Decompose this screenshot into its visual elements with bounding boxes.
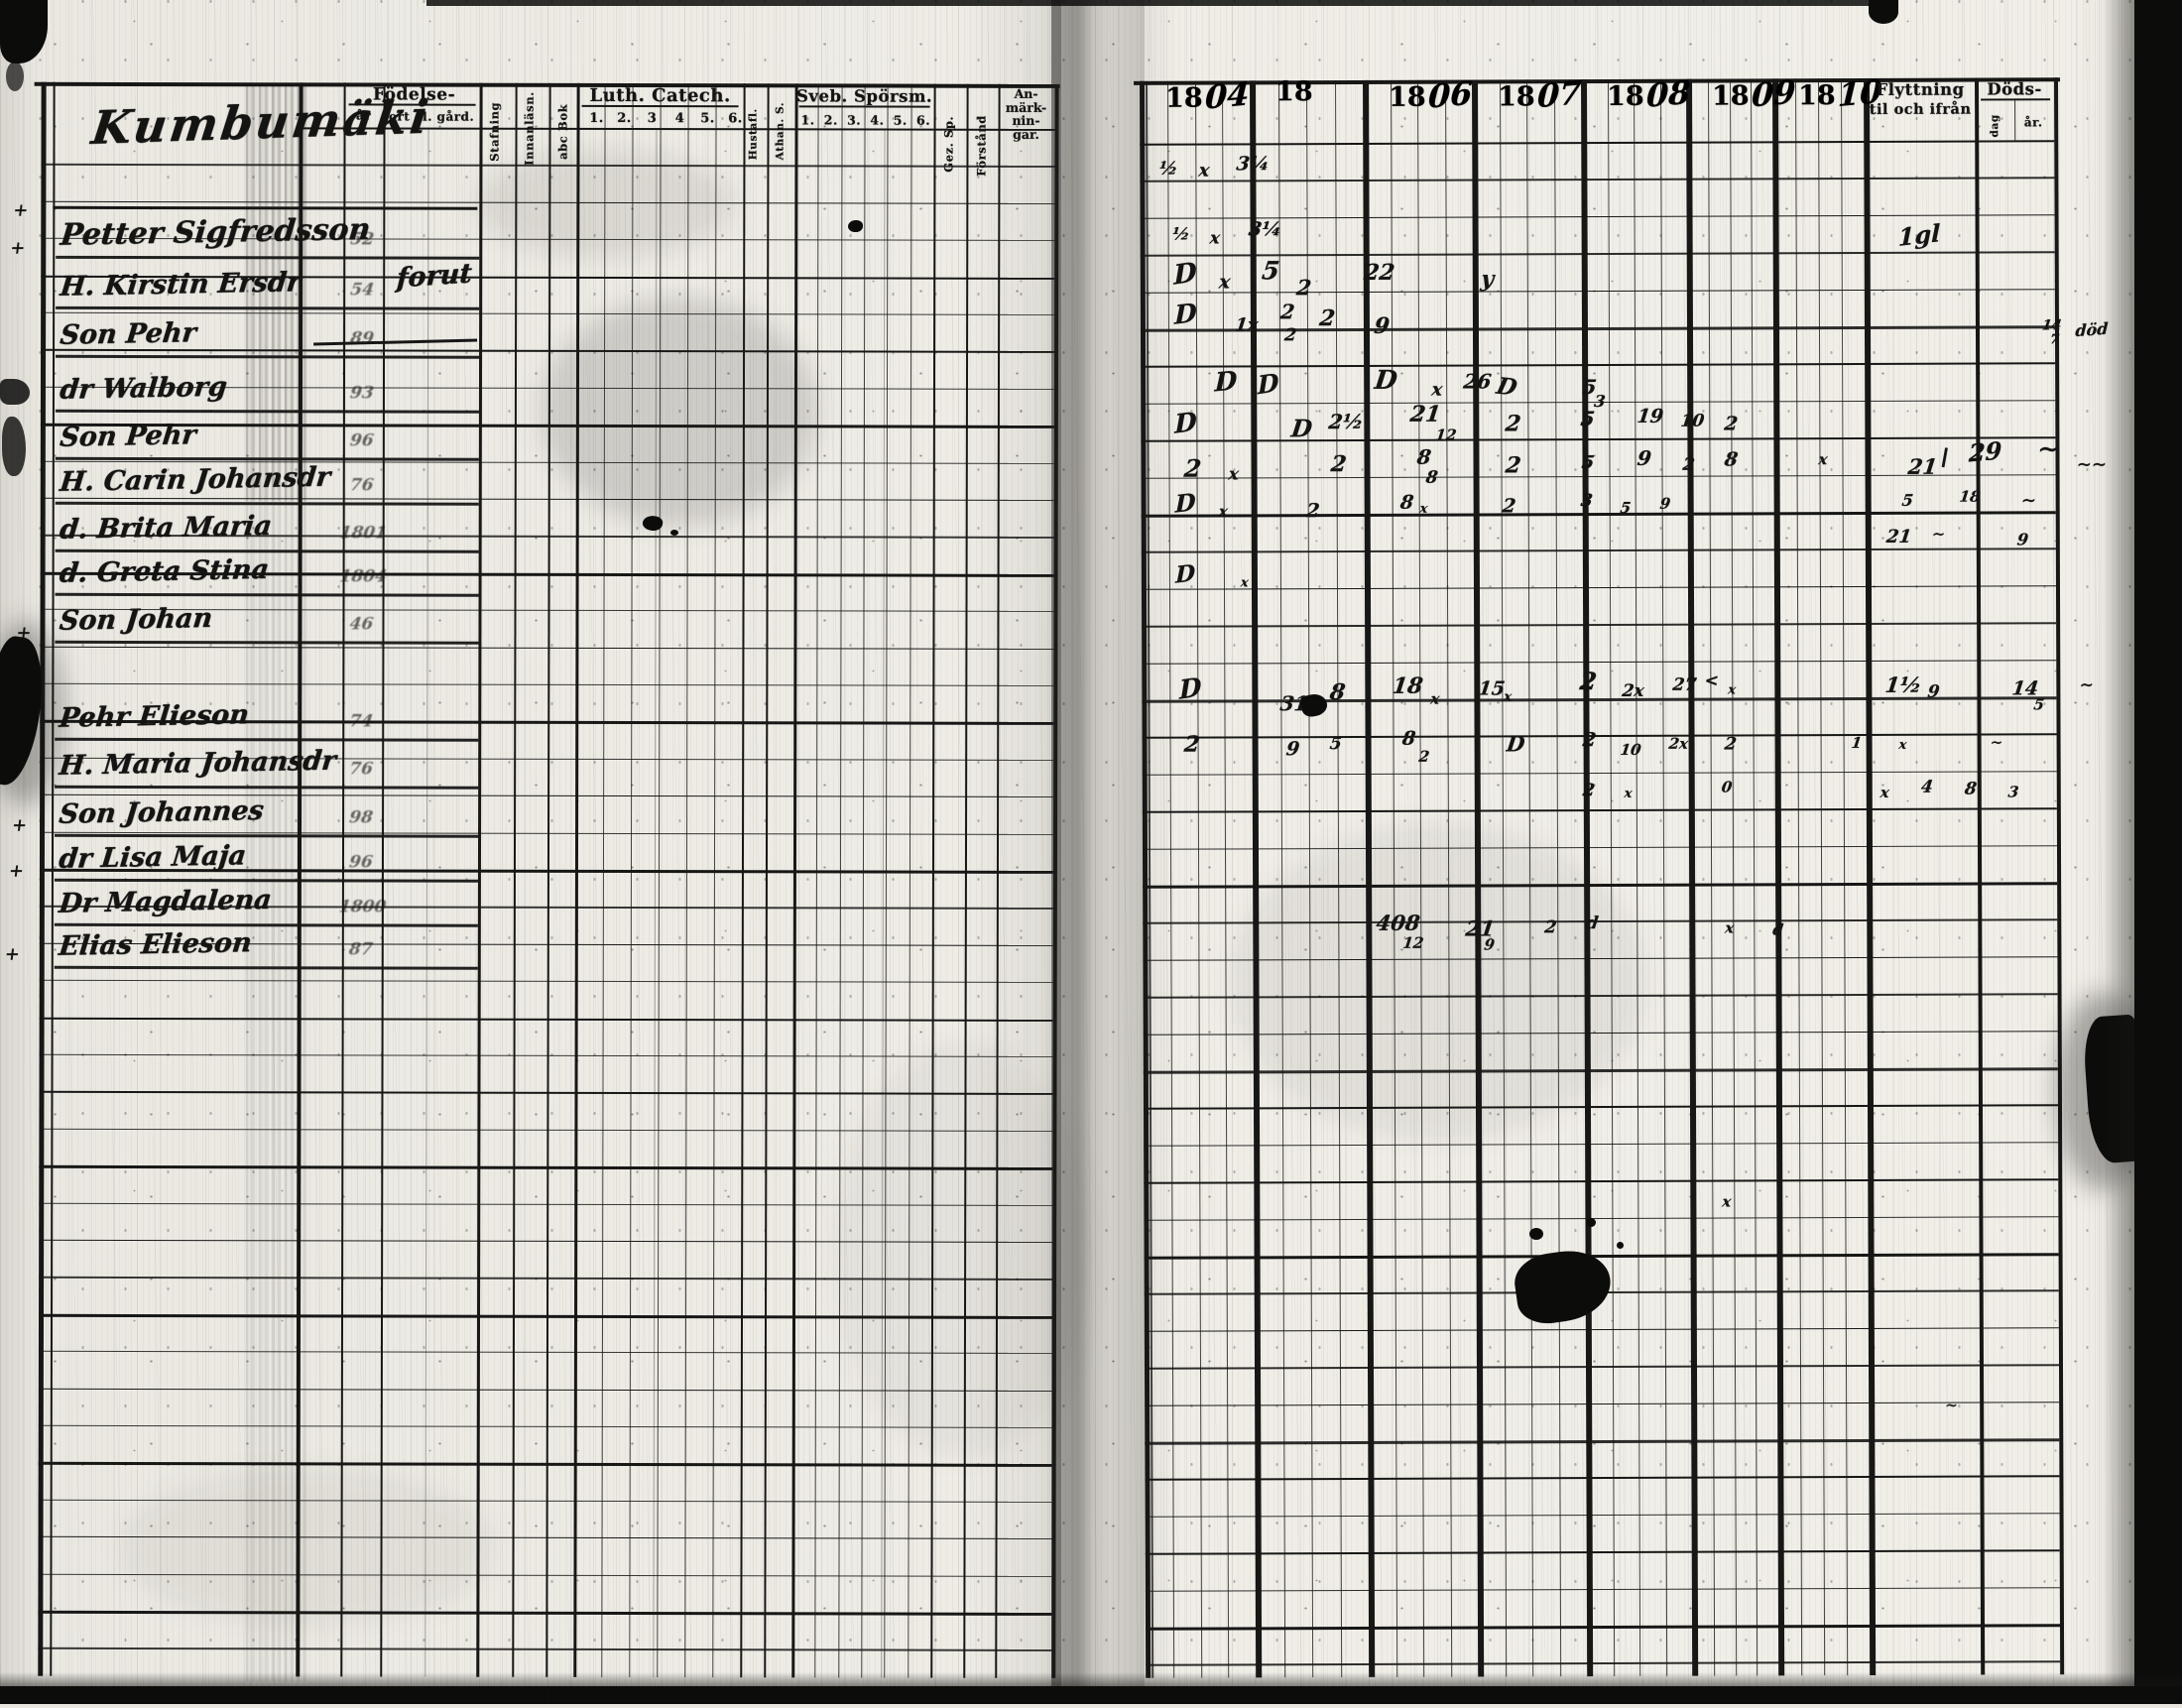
record-mark: 18: [1959, 488, 1982, 506]
record-mark: D: [1173, 257, 1197, 292]
record-mark: 8: [1964, 780, 1978, 799]
book-scan-background: Kumbumäki Födelse- år ort el. gård. Staf…: [0, 0, 2182, 1704]
scan-edge-bottom: [0, 1686, 2182, 1704]
record-mark: 9: [1926, 682, 1940, 702]
ink-blot: [1617, 1242, 1624, 1249]
record-mark: 9: [2016, 530, 2029, 549]
record-mark: 2: [1682, 455, 1696, 475]
record-mark: d: [1771, 920, 1784, 938]
record-marks: ½x3¼1gl½x3¼Dx5222yD1x2229147dödDDDx26D53…: [0, 0, 2182, 1708]
scan-streak-band: [246, 501, 309, 1681]
record-mark: D: [1175, 487, 1196, 518]
record-mark: 2x: [1668, 735, 1690, 753]
record-mark: 9: [1373, 313, 1391, 339]
record-mark: 3¼: [1235, 153, 1271, 175]
record-mark: x: [1197, 161, 1210, 182]
record-mark: x: [1228, 464, 1241, 484]
record-mark: 5: [1579, 407, 1596, 430]
record-mark: y: [1480, 266, 1496, 292]
record-mark: x: [1429, 690, 1440, 708]
record-mark: D: [1289, 414, 1313, 442]
record-mark: 7: [2049, 332, 2060, 347]
record-mark: 3: [2007, 783, 2020, 800]
scan-streak-band: [246, 84, 309, 501]
record-mark: 5: [1620, 499, 1633, 517]
record-mark: 2: [1279, 300, 1296, 323]
record-mark: 5: [1581, 452, 1596, 473]
record-mark: 2: [1183, 732, 1201, 758]
record-mark: 8: [1724, 448, 1740, 470]
record-mark: 1gl: [1898, 218, 1941, 252]
scan-edge-right: [2134, 0, 2182, 1704]
right-page: 18041818061807180818091810 Flyttning til…: [0, 0, 2182, 1708]
record-mark: 19: [1636, 406, 1664, 427]
record-mark: 8: [1425, 468, 1439, 488]
record-mark: 22: [1363, 260, 1396, 286]
record-mark: 15: [1477, 677, 1506, 699]
record-mark: 2: [1295, 275, 1313, 300]
record-mark: 5: [1329, 734, 1343, 754]
record-mark: 2: [1578, 667, 1598, 695]
record-mark: 8: [1399, 492, 1415, 514]
record-mark: ∼: [1944, 1397, 1959, 1414]
record-mark: x: [1218, 271, 1232, 293]
record-mark: D: [1175, 559, 1195, 588]
record-mark: 5: [1261, 256, 1281, 285]
ink-blot: [670, 530, 678, 536]
record-mark: 2: [1318, 305, 1336, 331]
ink-blot: [848, 220, 863, 232]
record-mark: \: [1937, 442, 1954, 471]
record-mark: 2: [1723, 413, 1739, 434]
record-mark: 26: [1462, 369, 1493, 393]
record-mark: 1½: [1883, 672, 1922, 697]
scan-edge-corner: [6, 61, 24, 91]
record-mark: 21: [1885, 527, 1913, 548]
record-mark: x: [1724, 919, 1735, 937]
record-mark: 2½: [1327, 410, 1365, 433]
record-mark: 10: [1620, 741, 1642, 759]
record-mark: 21: [1408, 402, 1442, 427]
record-mark: x: [1879, 784, 1890, 801]
record-mark: 4: [1920, 778, 1934, 797]
record-mark: 10: [1679, 412, 1705, 431]
record-mark: x: [1503, 689, 1513, 704]
record-mark: 5: [2032, 695, 2045, 713]
record-mark: x: [1624, 787, 1634, 801]
record-mark: x: [1727, 682, 1737, 697]
record-mark: 9: [1659, 495, 1672, 513]
record-mark: ∼: [1990, 733, 2004, 751]
record-mark: D: [1373, 366, 1398, 396]
record-mark: 1: [1851, 734, 1864, 752]
record-mark: 2: [1505, 452, 1522, 478]
record-mark: 8: [1401, 728, 1417, 750]
record-mark: ½: [1171, 225, 1191, 245]
record-mark: x: [1898, 738, 1908, 753]
record-mark: 12: [1434, 427, 1457, 444]
record-mark: x: [1209, 228, 1222, 248]
scanned-parish-register: { "page_title": "Kumbumäki", "left_table…: [0, 0, 2182, 1704]
record-mark: <: [1703, 671, 1720, 691]
record-mark: 9: [1636, 446, 1653, 470]
record-mark: ∼: [2078, 675, 2095, 695]
record-mark: 1x: [1234, 314, 1260, 335]
record-mark: ∼: [2020, 490, 2038, 511]
record-mark: 2: [1305, 500, 1321, 522]
record-mark: x: [1218, 502, 1229, 520]
record-mark: D: [1174, 299, 1197, 331]
margin-smear: [0, 379, 30, 405]
record-mark: D: [1506, 731, 1526, 756]
record-mark: 2: [1582, 781, 1596, 800]
record-mark: 2: [1283, 325, 1297, 345]
stain: [1230, 823, 1646, 1141]
ink-blot: [1587, 1218, 1596, 1227]
record-mark: D: [1179, 672, 1202, 705]
scan-edge-bottom-noise: [0, 1672, 2182, 1686]
record-mark: 18: [1391, 673, 1424, 699]
record-mark: 14: [2041, 317, 2062, 333]
stain: [476, 149, 734, 258]
record-mark: 2: [1504, 411, 1521, 436]
record-mark: 2: [1330, 451, 1348, 477]
record-mark: 0: [1721, 779, 1734, 796]
record-mark: 8: [1328, 679, 1346, 705]
record-mark: D: [1494, 373, 1519, 402]
record-mark: 29: [1969, 435, 2002, 467]
record-mark: 3¼: [1248, 218, 1283, 240]
record-mark: x: [1721, 1193, 1732, 1211]
scan-edge-top: [426, 0, 1875, 6]
stain: [541, 298, 818, 526]
record-mark: 2: [1183, 454, 1203, 483]
record-mark: 2x: [1621, 681, 1644, 701]
record-mark: 2: [1582, 729, 1598, 751]
record-mark: x: [1430, 380, 1443, 401]
record-mark: D: [1174, 408, 1196, 440]
record-mark: 27: [1671, 675, 1697, 695]
record-mark: x: [1818, 450, 1829, 468]
record-mark: ½: [1157, 159, 1178, 180]
record-mark: 3: [1580, 491, 1594, 511]
record-mark: 9: [1285, 738, 1301, 760]
record-mark: 2: [1418, 748, 1431, 766]
record-mark: 8: [1416, 445, 1433, 469]
record-mark: 2: [1502, 495, 1517, 517]
record-mark: D: [1214, 366, 1237, 398]
scan-edge-fleck: [1869, 0, 1898, 24]
stain: [833, 1041, 1091, 1458]
record-mark: 21: [1907, 454, 1939, 479]
ink-blot: [1529, 1228, 1543, 1240]
record-mark: 2: [1724, 734, 1738, 754]
record-mark: x: [1240, 575, 1250, 590]
record-mark: D: [1258, 368, 1279, 400]
record-mark: x: [1419, 502, 1429, 517]
record-mark: ∼: [1931, 525, 1947, 544]
record-mark: 5: [1901, 491, 1914, 510]
record-mark: ∼: [2036, 434, 2061, 464]
